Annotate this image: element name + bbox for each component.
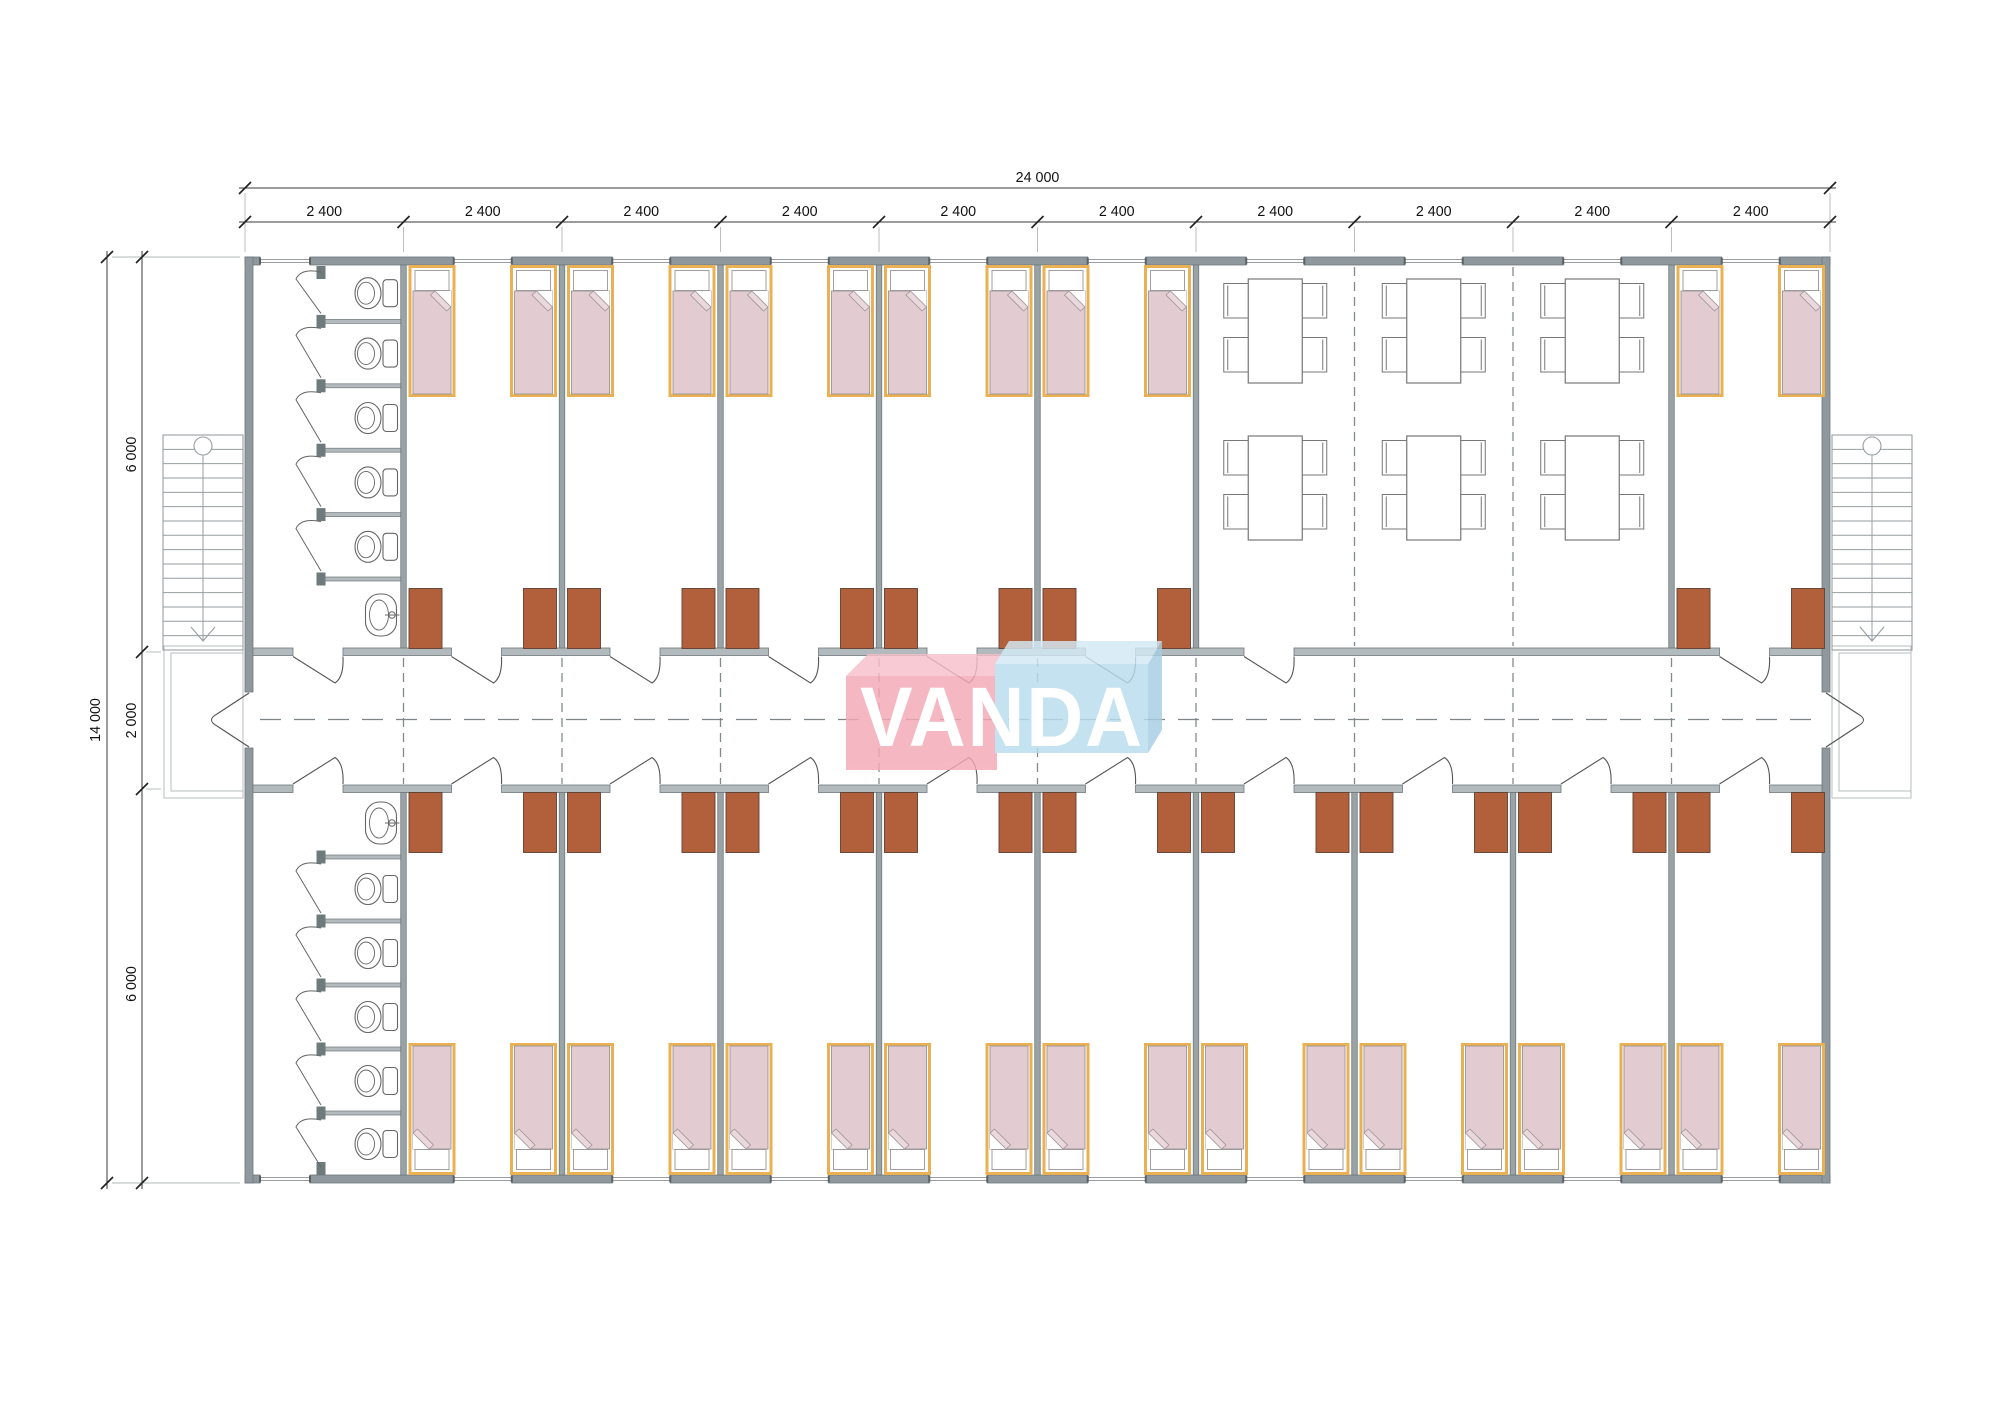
- toilet-icon: [355, 403, 398, 434]
- door-stub: [317, 444, 326, 457]
- top-outer-wall: [1146, 257, 1247, 265]
- dim-label-module: 2 400: [306, 204, 342, 220]
- bedroom-top-6: [1043, 267, 1191, 649]
- pillow: [1151, 271, 1185, 291]
- wardrobe: [1202, 793, 1235, 853]
- bedroom-bottom-10: [1677, 793, 1825, 1174]
- pillow: [1785, 271, 1819, 291]
- toilet-icon: [355, 938, 398, 969]
- door-stub: [317, 979, 326, 992]
- door-swing-icon: [1858, 714, 1864, 726]
- door-leaf: [217, 693, 249, 714]
- partition-wall: [876, 793, 882, 1176]
- bedroom-bottom-7: [1202, 793, 1350, 1174]
- wardrobe: [1043, 793, 1076, 853]
- toilet-icon: [355, 1066, 398, 1097]
- door-swing-icon: [1403, 758, 1453, 785]
- stall-door-icon: [296, 327, 321, 377]
- corridor-top-wall: [1294, 648, 1720, 656]
- dim-label-module: 2 400: [1733, 204, 1769, 220]
- wardrobe: [568, 589, 601, 649]
- left-outer-wall: [245, 257, 253, 692]
- stall-divider: [322, 1047, 401, 1051]
- wardrobe: [409, 793, 442, 853]
- wardrobe: [1633, 793, 1666, 853]
- bed: [886, 1045, 930, 1174]
- bedroom-top-10: [1677, 267, 1825, 649]
- door-stub: [317, 915, 326, 928]
- toilet-icon: [355, 467, 398, 498]
- partition-wall: [1193, 793, 1199, 1176]
- wardrobe: [524, 589, 557, 649]
- bed: [1361, 1045, 1405, 1174]
- table-icon: [1565, 436, 1619, 540]
- dim-label-module: 2 400: [940, 204, 976, 220]
- door-stub: [317, 1107, 326, 1120]
- wardrobe: [1519, 793, 1552, 853]
- wardrobe: [682, 793, 715, 853]
- door-swing-icon: [769, 758, 819, 785]
- dining-table-set: [1224, 279, 1327, 383]
- bedroom-bottom-6: [1043, 793, 1191, 1174]
- stall-door-icon: [296, 456, 321, 506]
- wardrobe: [885, 589, 918, 649]
- dining-table-set: [1382, 436, 1485, 540]
- corridor-top-wall: [253, 648, 293, 656]
- dining-table-set: [1541, 279, 1644, 383]
- wardrobe: [999, 589, 1032, 649]
- partition-wall: [1352, 793, 1358, 1176]
- bed: [829, 267, 873, 396]
- pillow: [1785, 1150, 1819, 1170]
- door-stub: [317, 573, 326, 586]
- bedroom-bottom-5: [885, 793, 1033, 1174]
- dimensions-top: 24 0002 4002 4002 4002 4002 4002 4002 40…: [239, 170, 1836, 252]
- door-leaf: [1826, 693, 1858, 714]
- door-swing-icon: [1561, 758, 1611, 785]
- door-stub: [317, 379, 326, 392]
- pillow: [891, 1150, 925, 1170]
- bed: [410, 267, 454, 396]
- door-leaf: [1826, 726, 1858, 747]
- wardrobe: [1792, 793, 1825, 853]
- corridor-bottom-wall: [1611, 785, 1720, 793]
- door-swing-icon: [212, 714, 218, 726]
- pillow: [834, 271, 868, 291]
- bottom-outer-wall: [1304, 1175, 1405, 1183]
- top-outer-wall: [1463, 257, 1564, 265]
- partition-wall: [401, 265, 407, 648]
- corridor-bottom-wall: [1453, 785, 1562, 793]
- wardrobe: [682, 589, 715, 649]
- bedroom-bottom-4: [726, 793, 874, 1174]
- wardrobe: [1677, 793, 1710, 853]
- bed: [1780, 1045, 1824, 1174]
- entrance-porch-right: [1832, 646, 1911, 798]
- stall-door-icon: [296, 927, 321, 977]
- bed: [569, 267, 613, 396]
- stall-divider: [322, 384, 401, 388]
- pillow: [1208, 1150, 1242, 1170]
- dim-label-module: 2 400: [1099, 204, 1135, 220]
- pillow: [992, 271, 1026, 291]
- pillow: [1049, 271, 1083, 291]
- wardrobe: [568, 793, 601, 853]
- bedroom-top-2: [409, 267, 557, 649]
- stall-door-icon: [296, 1055, 321, 1105]
- pillow: [834, 1150, 868, 1170]
- top-outer-wall: [670, 257, 771, 265]
- dining-table-set: [1224, 436, 1327, 540]
- stall-door-icon: [296, 521, 321, 571]
- wardrobe: [524, 793, 557, 853]
- bed: [727, 267, 771, 396]
- wardrobe: [409, 589, 442, 649]
- table-icon: [1407, 436, 1461, 540]
- bed: [670, 267, 714, 396]
- partition-wall: [718, 265, 724, 648]
- dim-label-module: 2 400: [623, 204, 659, 220]
- pillow: [891, 271, 925, 291]
- wardrobe: [726, 793, 759, 853]
- dim-label-module: 2 400: [465, 204, 501, 220]
- bottom-outer-wall: [1621, 1175, 1722, 1183]
- corridor-bottom-wall: [343, 785, 452, 793]
- wardrobe: [841, 793, 874, 853]
- door-swing-icon: [1244, 657, 1294, 684]
- dim-label-corridor-depth: 2 000: [124, 703, 140, 739]
- door-swing-icon: [293, 657, 343, 684]
- pillow: [1525, 1150, 1559, 1170]
- toilet-icon: [355, 874, 398, 905]
- bed: [1520, 1045, 1564, 1174]
- door-swing-icon: [1244, 758, 1294, 785]
- vanda-watermark: VANDA: [846, 641, 1162, 770]
- bed: [1304, 1045, 1348, 1174]
- pillow: [517, 271, 551, 291]
- door-stub: [317, 851, 326, 864]
- partition-wall: [1669, 265, 1675, 648]
- door-leaf: [217, 726, 249, 747]
- dining-table-set: [1382, 279, 1485, 383]
- toilet-icon: [355, 278, 398, 309]
- stall-door-icon: [296, 1119, 321, 1167]
- door-stub: [317, 315, 326, 328]
- pillow: [992, 1150, 1026, 1170]
- partition-wall: [1669, 793, 1675, 1176]
- floor-plan-drawing: 24 0002 4002 4002 4002 4002 4002 4002 40…: [0, 0, 2000, 1415]
- stall-door-icon: [296, 991, 321, 1041]
- partition-wall: [1193, 265, 1199, 648]
- pillow: [1626, 1150, 1660, 1170]
- corridor-bottom-wall: [660, 785, 769, 793]
- stall-divider: [322, 577, 401, 581]
- bed: [1044, 1045, 1088, 1174]
- bed: [410, 1045, 454, 1174]
- pillow: [1309, 1150, 1343, 1170]
- top-outer-wall: [310, 257, 454, 265]
- dim-label-total-width: 24 000: [1016, 170, 1060, 186]
- partition-wall: [559, 793, 565, 1176]
- corridor-bottom-wall: [1136, 785, 1245, 793]
- wardrobe: [1475, 793, 1508, 853]
- partition-wall: [718, 793, 724, 1176]
- bed: [727, 1045, 771, 1174]
- corridor-bottom-wall: [819, 785, 928, 793]
- top-outer-wall: [1304, 257, 1405, 265]
- bedroom-top-4: [726, 267, 874, 649]
- corridor-bottom-wall: [1294, 785, 1403, 793]
- door-swing-icon: [452, 657, 502, 684]
- top-outer-wall: [987, 257, 1088, 265]
- pillow: [1683, 271, 1717, 291]
- stairs-left: [163, 435, 243, 650]
- door-stub: [317, 508, 326, 521]
- stair-start-circle: [1863, 437, 1881, 455]
- pillow: [1366, 1150, 1400, 1170]
- door-swing-icon: [610, 657, 660, 684]
- bed: [512, 1045, 556, 1174]
- wardrobe: [885, 793, 918, 853]
- wardrobe: [1677, 589, 1710, 649]
- stall-divider: [322, 513, 401, 517]
- stall-divider: [322, 855, 401, 859]
- bed: [1678, 267, 1722, 396]
- table-icon: [1407, 279, 1461, 383]
- wardrobe: [1043, 589, 1076, 649]
- pillow: [1468, 1150, 1502, 1170]
- toilet-icon: [355, 1002, 398, 1033]
- bedroom-top-5: [885, 267, 1033, 649]
- pillow: [1683, 1150, 1717, 1170]
- pillow: [574, 271, 608, 291]
- pillow: [574, 1150, 608, 1170]
- bedroom-bottom-2: [409, 793, 557, 1174]
- top-outer-wall: [1621, 257, 1722, 265]
- bottom-outer-wall: [670, 1175, 771, 1183]
- bedroom-bottom-8: [1360, 793, 1508, 1174]
- bed: [670, 1045, 714, 1174]
- bed: [1146, 1045, 1190, 1174]
- corridor-top-wall: [502, 648, 611, 656]
- door-stub: [317, 1162, 326, 1175]
- table-icon: [1248, 279, 1302, 383]
- wardrobe: [1792, 589, 1825, 649]
- bathroom-bottom: [296, 802, 401, 1175]
- pillow: [415, 1150, 449, 1170]
- corridor-top-wall: [1770, 648, 1823, 656]
- partition-wall: [559, 265, 565, 648]
- stall-divider: [322, 1111, 401, 1115]
- door-swing-icon: [610, 758, 660, 785]
- wardrobe: [841, 589, 874, 649]
- bedroom-bottom-3: [568, 793, 716, 1174]
- corridor-top-wall: [660, 648, 769, 656]
- bedroom-bottom-9: [1519, 793, 1667, 1174]
- dining-area: [1224, 267, 1644, 646]
- partition-wall: [1510, 793, 1516, 1176]
- top-outer-wall: [829, 257, 930, 265]
- corridor-bottom-wall: [253, 785, 293, 793]
- bedroom-top-3: [568, 267, 716, 649]
- pillow: [675, 1150, 709, 1170]
- dining-table-set: [1541, 436, 1644, 540]
- dim-label-module: 2 400: [1416, 204, 1452, 220]
- bed: [1678, 1045, 1722, 1174]
- wardrobe: [726, 589, 759, 649]
- toilet-icon: [355, 338, 398, 369]
- bed: [1044, 267, 1088, 396]
- toilet-icon: [355, 1129, 398, 1160]
- left-outer-wall: [245, 748, 253, 1183]
- sink-icon: [366, 802, 400, 844]
- pillow: [1049, 1150, 1083, 1170]
- bottom-outer-wall: [987, 1175, 1088, 1183]
- pillow: [415, 271, 449, 291]
- pillow: [517, 1150, 551, 1170]
- bottom-outer-wall: [310, 1175, 454, 1183]
- table-icon: [1565, 279, 1619, 383]
- door-swing-icon: [1720, 758, 1770, 785]
- stair-start-circle: [194, 437, 212, 455]
- stall-divider: [322, 448, 401, 452]
- wardrobe: [1360, 793, 1393, 853]
- corridor-bottom-wall: [502, 785, 611, 793]
- bottom-outer-wall: [829, 1175, 930, 1183]
- bed: [987, 267, 1031, 396]
- bed: [987, 1045, 1031, 1174]
- entrance-porch-left: [164, 646, 243, 798]
- dim-label-module: 2 400: [782, 204, 818, 220]
- stall-door-icon: [296, 863, 321, 913]
- wardrobe: [1158, 793, 1191, 853]
- toilet-icon: [355, 531, 398, 562]
- floor-plan: 24 0002 4002 4002 4002 4002 4002 4002 40…: [0, 0, 2000, 1415]
- partition-wall: [1035, 265, 1041, 648]
- door-swing-icon: [769, 657, 819, 684]
- door-swing-icon: [1720, 657, 1770, 684]
- bottom-outer-wall: [1463, 1175, 1564, 1183]
- bed: [569, 1045, 613, 1174]
- partition-wall: [876, 265, 882, 648]
- stall-divider: [322, 919, 401, 923]
- bottom-outer-wall: [512, 1175, 613, 1183]
- stall-divider: [322, 319, 401, 323]
- bed: [512, 267, 556, 396]
- door-swing-icon: [293, 758, 343, 785]
- bottom-outer-wall: [1146, 1175, 1247, 1183]
- bed: [1621, 1045, 1665, 1174]
- door-swing-icon: [452, 758, 502, 785]
- corridor-bottom-wall: [977, 785, 1086, 793]
- dim-label-lower-depth: 6 000: [124, 966, 140, 1002]
- pillow: [675, 271, 709, 291]
- bed: [1203, 1045, 1247, 1174]
- partition-wall: [1035, 793, 1041, 1176]
- stairs-right: [1832, 435, 1912, 650]
- bed: [1780, 267, 1824, 396]
- bathroom-top: [296, 266, 401, 636]
- pillow: [732, 1150, 766, 1170]
- watermark-text: VANDA: [860, 670, 1144, 764]
- partition-wall: [401, 793, 407, 1176]
- wardrobe: [999, 793, 1032, 853]
- wardrobe: [1316, 793, 1349, 853]
- stall-door-icon: [296, 392, 321, 442]
- pillow: [1151, 1150, 1185, 1170]
- bed: [886, 267, 930, 396]
- table-icon: [1248, 436, 1302, 540]
- bed: [1146, 267, 1190, 396]
- door-stub: [317, 1043, 326, 1056]
- bed: [829, 1045, 873, 1174]
- dim-label-upper-depth: 6 000: [124, 437, 140, 473]
- wardrobe: [1158, 589, 1191, 649]
- dim-label-module: 2 400: [1257, 204, 1293, 220]
- door-stub: [317, 266, 326, 279]
- bed: [1463, 1045, 1507, 1174]
- stall-divider: [322, 983, 401, 987]
- sink-icon: [366, 594, 400, 636]
- corridor-bottom-wall: [1770, 785, 1823, 793]
- dim-label-total-height: 14 000: [88, 698, 104, 742]
- dim-label-module: 2 400: [1574, 204, 1610, 220]
- pillow: [732, 271, 766, 291]
- corridor-top-wall: [343, 648, 452, 656]
- top-outer-wall: [512, 257, 613, 265]
